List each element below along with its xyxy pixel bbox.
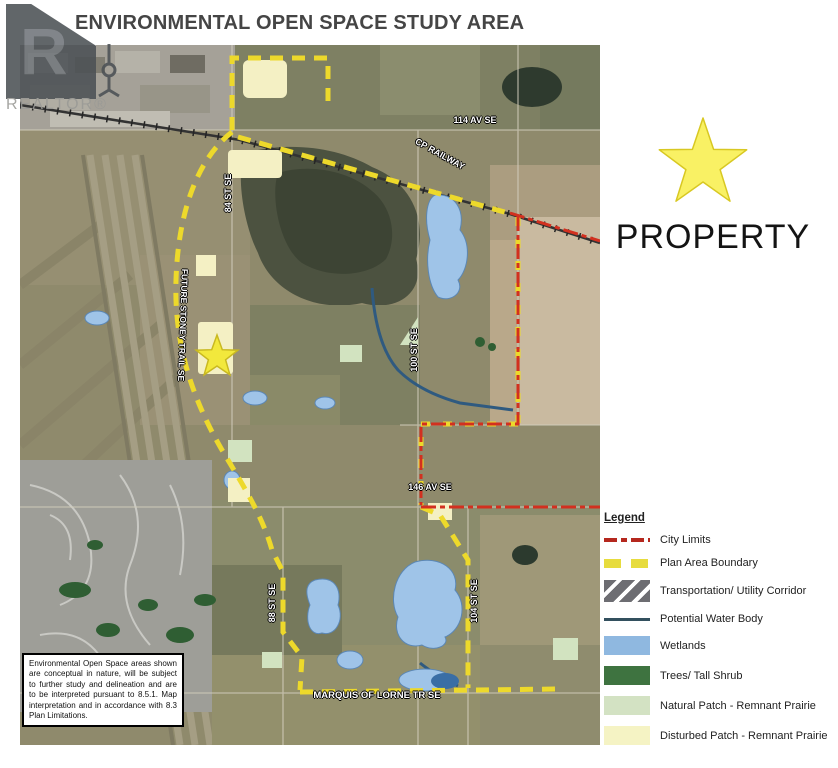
road-label-84-st-se: 84 ST SE [223,163,233,223]
disturbed-patch-swatch [604,726,650,745]
legend-label: Trees/ Tall Shrub [660,670,743,682]
legend-item-transportation-corridor: Transportation/ Utility Corridor [604,580,836,602]
legend-label: Plan Area Boundary [660,557,758,569]
aerial-map-image: 114 AV SE CP RAILWAY 84 ST SE FUTURE STO… [20,45,600,745]
dark-pond [502,67,562,107]
disclaimer-note: Environmental Open Space areas shown are… [22,653,184,727]
aerial-imagery [20,45,600,745]
legend-label: Natural Patch - Remnant Prairie [660,700,816,712]
road-label-146-av-se: 146 AV SE [398,482,462,492]
legend-label: City Limits [660,534,711,546]
city-limits-swatch [604,538,650,542]
legend-item-disturbed-patch: Disturbed Patch - Remnant Prairie [604,726,836,745]
legend-label: Wetlands [660,640,706,652]
road-label-114-av-se: 114 AV SE [440,115,510,125]
legend-label: Transportation/ Utility Corridor [660,585,806,597]
legend-heading: Legend [604,512,836,524]
page-title: ENVIRONMENTAL OPEN SPACE STUDY AREA [75,12,635,35]
plan-area-boundary-swatch [604,559,650,568]
legend-label: Disturbed Patch - Remnant Prairie [660,730,828,742]
property-star-icon [653,112,753,217]
legend-item-plan-area-boundary: Plan Area Boundary [604,557,836,569]
road-label-marquis-of-lorne: MARQUIS OF LORNE TR SE [282,690,472,701]
natural-patch-swatch [604,696,650,715]
map-legend: Legend City Limits Plan Area Boundary Tr… [604,512,836,756]
legend-item-potential-water-body: Potential Water Body [604,613,836,625]
road-label-100-st-se: 100 ST SE [409,320,419,380]
transportation-corridor-swatch [604,580,650,602]
property-label: PROPERTY [608,218,818,257]
road-label-104-st-se: 104 ST SE [469,571,479,631]
legend-item-natural-patch: Natural Patch - Remnant Prairie [604,696,836,715]
legend-item-city-limits: City Limits [604,534,836,546]
realtor-r-letter: R [20,18,68,84]
wetlands-swatch [604,636,650,655]
potential-water-body-swatch [604,618,650,621]
trees-tall-shrub-swatch [604,666,650,685]
legend-item-trees-tall-shrub: Trees/ Tall Shrub [604,666,836,685]
compass-icon [96,44,122,103]
legend-label: Potential Water Body [660,613,763,625]
legend-item-wetlands: Wetlands [604,636,836,655]
realtor-wordmark: REALTOR® [6,96,108,114]
road-label-88-st-se: 88 ST SE [267,573,277,633]
